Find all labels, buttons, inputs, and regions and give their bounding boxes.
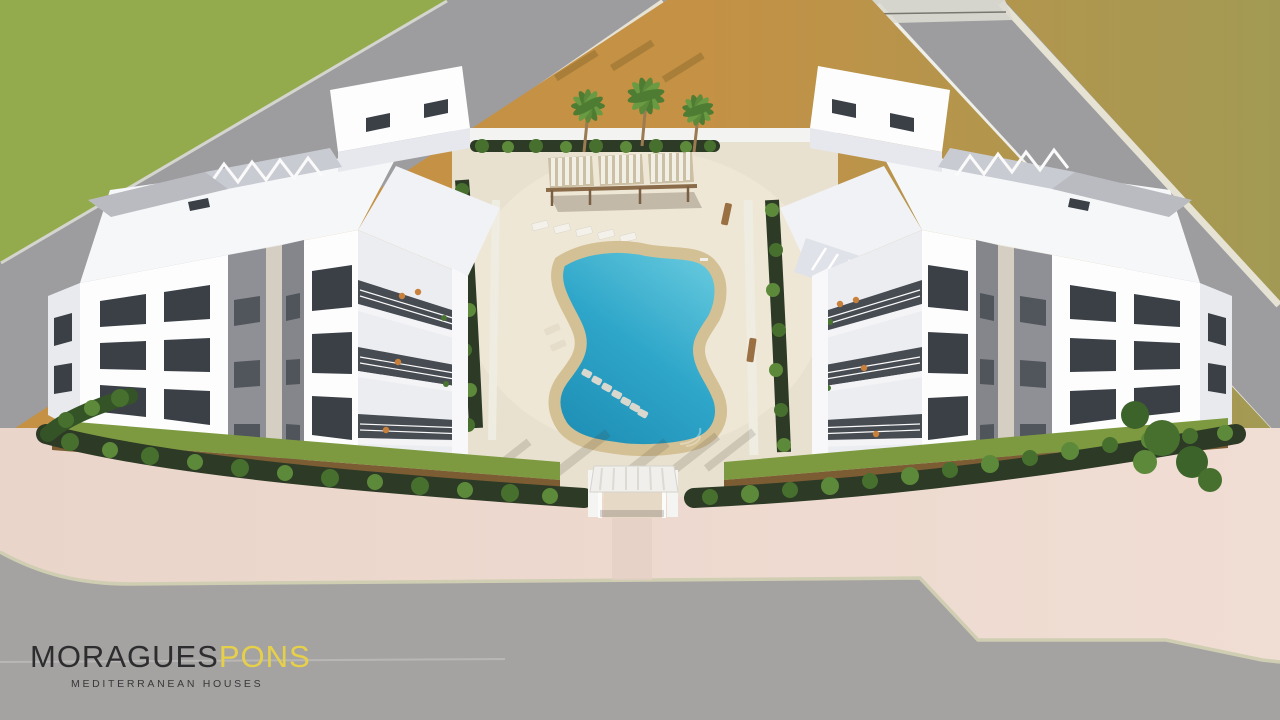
- back-wall: [452, 128, 838, 142]
- patio-chair: [383, 427, 389, 433]
- bush: [1133, 450, 1157, 474]
- bush: [765, 203, 779, 217]
- window: [164, 338, 210, 372]
- hedge-shrub: [367, 474, 383, 490]
- patio-chair: [861, 365, 867, 371]
- window: [312, 265, 352, 311]
- hedge-shrub: [475, 139, 489, 153]
- window: [1020, 360, 1046, 388]
- facade-accent-band: [266, 245, 282, 465]
- window: [312, 396, 352, 440]
- hedge-shrub: [560, 141, 572, 153]
- gate-shadow: [600, 510, 664, 517]
- patio-chair: [399, 293, 405, 299]
- bush: [777, 438, 791, 452]
- canopy-stripe: [565, 157, 569, 185]
- hedge-shrub: [321, 469, 339, 487]
- hedge-shrub: [187, 454, 203, 470]
- window: [286, 359, 300, 385]
- rendering-canvas: [0, 0, 1280, 720]
- window: [928, 332, 968, 374]
- hedge-shrub: [102, 442, 118, 458]
- swimming-pool: [555, 247, 722, 450]
- window: [1070, 338, 1116, 372]
- canopy-stripe: [558, 158, 562, 186]
- bush: [1121, 401, 1149, 429]
- bush: [772, 323, 786, 337]
- hedge-shrub: [704, 140, 716, 152]
- hedge-shrub: [1102, 437, 1118, 453]
- window: [100, 341, 146, 370]
- bush: [766, 283, 780, 297]
- hedge-shrub: [680, 141, 692, 153]
- canopy-stripe: [651, 154, 655, 182]
- bush: [769, 243, 783, 257]
- bush: [769, 363, 783, 377]
- hedge-shrub: [58, 412, 74, 428]
- hedge-shrub: [61, 433, 79, 451]
- pool-ladder: [700, 258, 708, 261]
- developer-logo: MORAGUESPONS: [30, 640, 311, 674]
- hedge-shrub: [981, 455, 999, 473]
- walkway: [492, 200, 496, 440]
- canopy-stripe: [586, 156, 590, 184]
- window: [312, 332, 352, 374]
- hedge-shrub: [620, 141, 632, 153]
- bush: [1144, 420, 1180, 456]
- hedge-shrub: [901, 467, 919, 485]
- hedge-shrub: [1061, 442, 1079, 460]
- patio-chair: [415, 289, 421, 295]
- window: [286, 293, 300, 321]
- hedge-shrub: [502, 141, 514, 153]
- canopy-stripe: [679, 153, 683, 181]
- patio-chair: [853, 297, 859, 303]
- hedge-shrub: [1182, 428, 1198, 444]
- window: [928, 265, 968, 311]
- hedge-shrub: [821, 477, 839, 495]
- hedge-shrub: [501, 484, 519, 502]
- patio-chair: [873, 431, 879, 437]
- corner-pier: [452, 268, 468, 472]
- canopy-stripe: [572, 157, 576, 185]
- window: [54, 363, 72, 394]
- canopy-stripe: [665, 153, 669, 181]
- pergola-bay: [598, 154, 644, 186]
- window: [928, 396, 968, 440]
- window: [1134, 341, 1180, 370]
- bush: [1198, 468, 1222, 492]
- window: [1070, 389, 1116, 425]
- hedge-shrub: [782, 482, 798, 498]
- window: [1208, 363, 1226, 394]
- pergola: [546, 152, 702, 212]
- hedge-shrub: [529, 139, 543, 153]
- gate-walkway: [612, 518, 652, 580]
- hedge-shrub: [542, 488, 558, 504]
- hedge-shrub: [411, 477, 429, 495]
- canopy-stripe: [601, 156, 605, 184]
- window: [1208, 313, 1226, 346]
- window: [54, 313, 72, 346]
- canopy-stripe: [658, 154, 662, 182]
- hedge-shrub: [84, 400, 100, 416]
- canopy-stripe: [672, 153, 676, 181]
- hedge-shrub: [457, 482, 473, 498]
- window: [234, 296, 260, 326]
- architectural-rendering: MORAGUESPONS MEDITERRANEAN HOUSES: [0, 0, 1280, 720]
- hedge-shrub: [702, 489, 718, 505]
- canopy-stripe: [636, 154, 640, 182]
- walkway: [748, 200, 754, 455]
- patio-chair: [395, 359, 401, 365]
- canopy-stripe: [579, 157, 583, 185]
- window: [980, 293, 994, 321]
- bush: [774, 403, 788, 417]
- canopy-stripe: [608, 156, 612, 184]
- hedge-shrub: [231, 459, 249, 477]
- hedge-shrub: [111, 389, 129, 407]
- canopy-stripe: [551, 158, 555, 186]
- pergola-bay: [648, 152, 694, 184]
- window: [1020, 296, 1046, 326]
- hedge-shrub: [942, 462, 958, 478]
- hedge-shrub: [277, 465, 293, 481]
- patio-chair: [837, 301, 843, 307]
- canopy-stripe: [622, 155, 626, 183]
- window: [980, 359, 994, 385]
- hedge-shrub: [741, 485, 759, 503]
- logo-wordmark-primary: MORAGUES: [30, 639, 219, 674]
- hedge-shrub: [1022, 450, 1038, 466]
- facade-accent-band: [998, 245, 1014, 465]
- hedge-shrub: [1217, 425, 1233, 441]
- canopy-stripe: [615, 155, 619, 183]
- window: [164, 389, 210, 425]
- pergola-bay: [548, 156, 594, 188]
- side-facade: [1200, 283, 1232, 432]
- canopy-stripe: [686, 152, 690, 180]
- logo-wordmark-secondary: PONS: [219, 639, 311, 674]
- pool-water: [555, 247, 722, 450]
- hedge-shrub: [649, 139, 663, 153]
- balcony-plant: [443, 381, 449, 387]
- corner-pier: [812, 268, 828, 472]
- hedge-shrub: [141, 447, 159, 465]
- window: [234, 360, 260, 388]
- hedge-shrub: [862, 473, 878, 489]
- balcony-plant: [441, 315, 447, 321]
- hedge-shrub: [589, 139, 603, 153]
- hedge-back: [470, 139, 720, 153]
- developer-tagline: MEDITERRANEAN HOUSES: [71, 678, 263, 690]
- canopy-stripe: [629, 155, 633, 183]
